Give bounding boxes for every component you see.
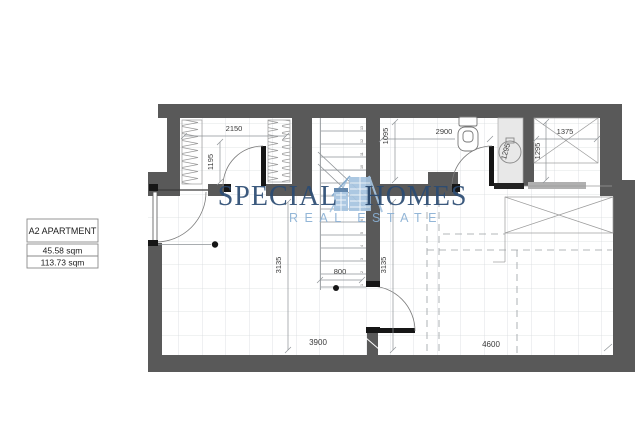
entry-door-leaf [153, 192, 157, 242]
dim-bath-depth: 1095 [381, 128, 390, 145]
toilet-icon [458, 117, 478, 151]
storage-threshold [528, 182, 586, 189]
stair-base-marker-dot [333, 285, 339, 291]
brand-word-special: SPECIAL [218, 181, 339, 212]
entry-jamb-top [149, 184, 158, 191]
apartment-title: A2 APARTMENT [29, 226, 97, 236]
bathroom-threshold [494, 183, 524, 189]
wall-top [158, 104, 622, 118]
floor-plan-drawing: 1 2 3 4 5 6 7 8 9 10 11 12 13 [0, 0, 640, 431]
apartment-label-box: A2 APARTMENT 45.58 sqm 113.73 sqm [27, 219, 98, 268]
dim-storage-width: 1375 [557, 127, 574, 136]
svg-text:12: 12 [360, 139, 364, 143]
entry-marker-dot [212, 241, 218, 247]
svg-text:10: 10 [360, 165, 364, 169]
apartment-area-2: 113.73 sqm [41, 258, 85, 268]
wall-left [148, 243, 162, 355]
brand-word-homes: HOMES [364, 181, 467, 212]
wall-right [613, 185, 635, 372]
entry-jamb-bottom [148, 240, 158, 246]
wall-closet-left [167, 104, 180, 174]
wardrobe-hatch-left [182, 120, 202, 184]
dim-storage-depth: 1295 [533, 143, 542, 160]
svg-text:5: 5 [360, 232, 364, 234]
dim-hall-depth: 3135 [274, 257, 283, 274]
floor-plan-page: 1 2 3 4 5 6 7 8 9 10 11 12 13 [0, 0, 640, 431]
brand-subtitle: REAL ESTATE [289, 211, 443, 225]
dim-stair-width: 800 [334, 267, 347, 276]
wall-bottom [148, 355, 635, 372]
bedroom-jamb-top [366, 281, 380, 287]
closet-door-leaf [261, 146, 266, 186]
bathroom-door-leaf [489, 146, 494, 186]
svg-text:4: 4 [360, 245, 364, 247]
dim-bath-width: 2900 [436, 127, 453, 136]
dim-bedroom-depth: 3135 [379, 257, 388, 274]
wall-storage-right [600, 104, 622, 184]
svg-text:1: 1 [360, 284, 364, 286]
dim-living-width: 3900 [309, 338, 327, 347]
apartment-area-1: 45.58 sqm [43, 246, 83, 256]
svg-text:13: 13 [360, 126, 364, 130]
svg-text:11: 11 [360, 152, 364, 156]
svg-text:3: 3 [360, 258, 364, 260]
svg-text:2: 2 [360, 271, 364, 273]
bedroom-jamb-bottom [366, 327, 380, 333]
wardrobe-hatch-right [268, 120, 290, 182]
dim-closet-width: 2150 [226, 124, 243, 133]
dim-closet-depth: 1195 [206, 154, 215, 170]
dim-bedroom-width: 4600 [482, 340, 500, 349]
